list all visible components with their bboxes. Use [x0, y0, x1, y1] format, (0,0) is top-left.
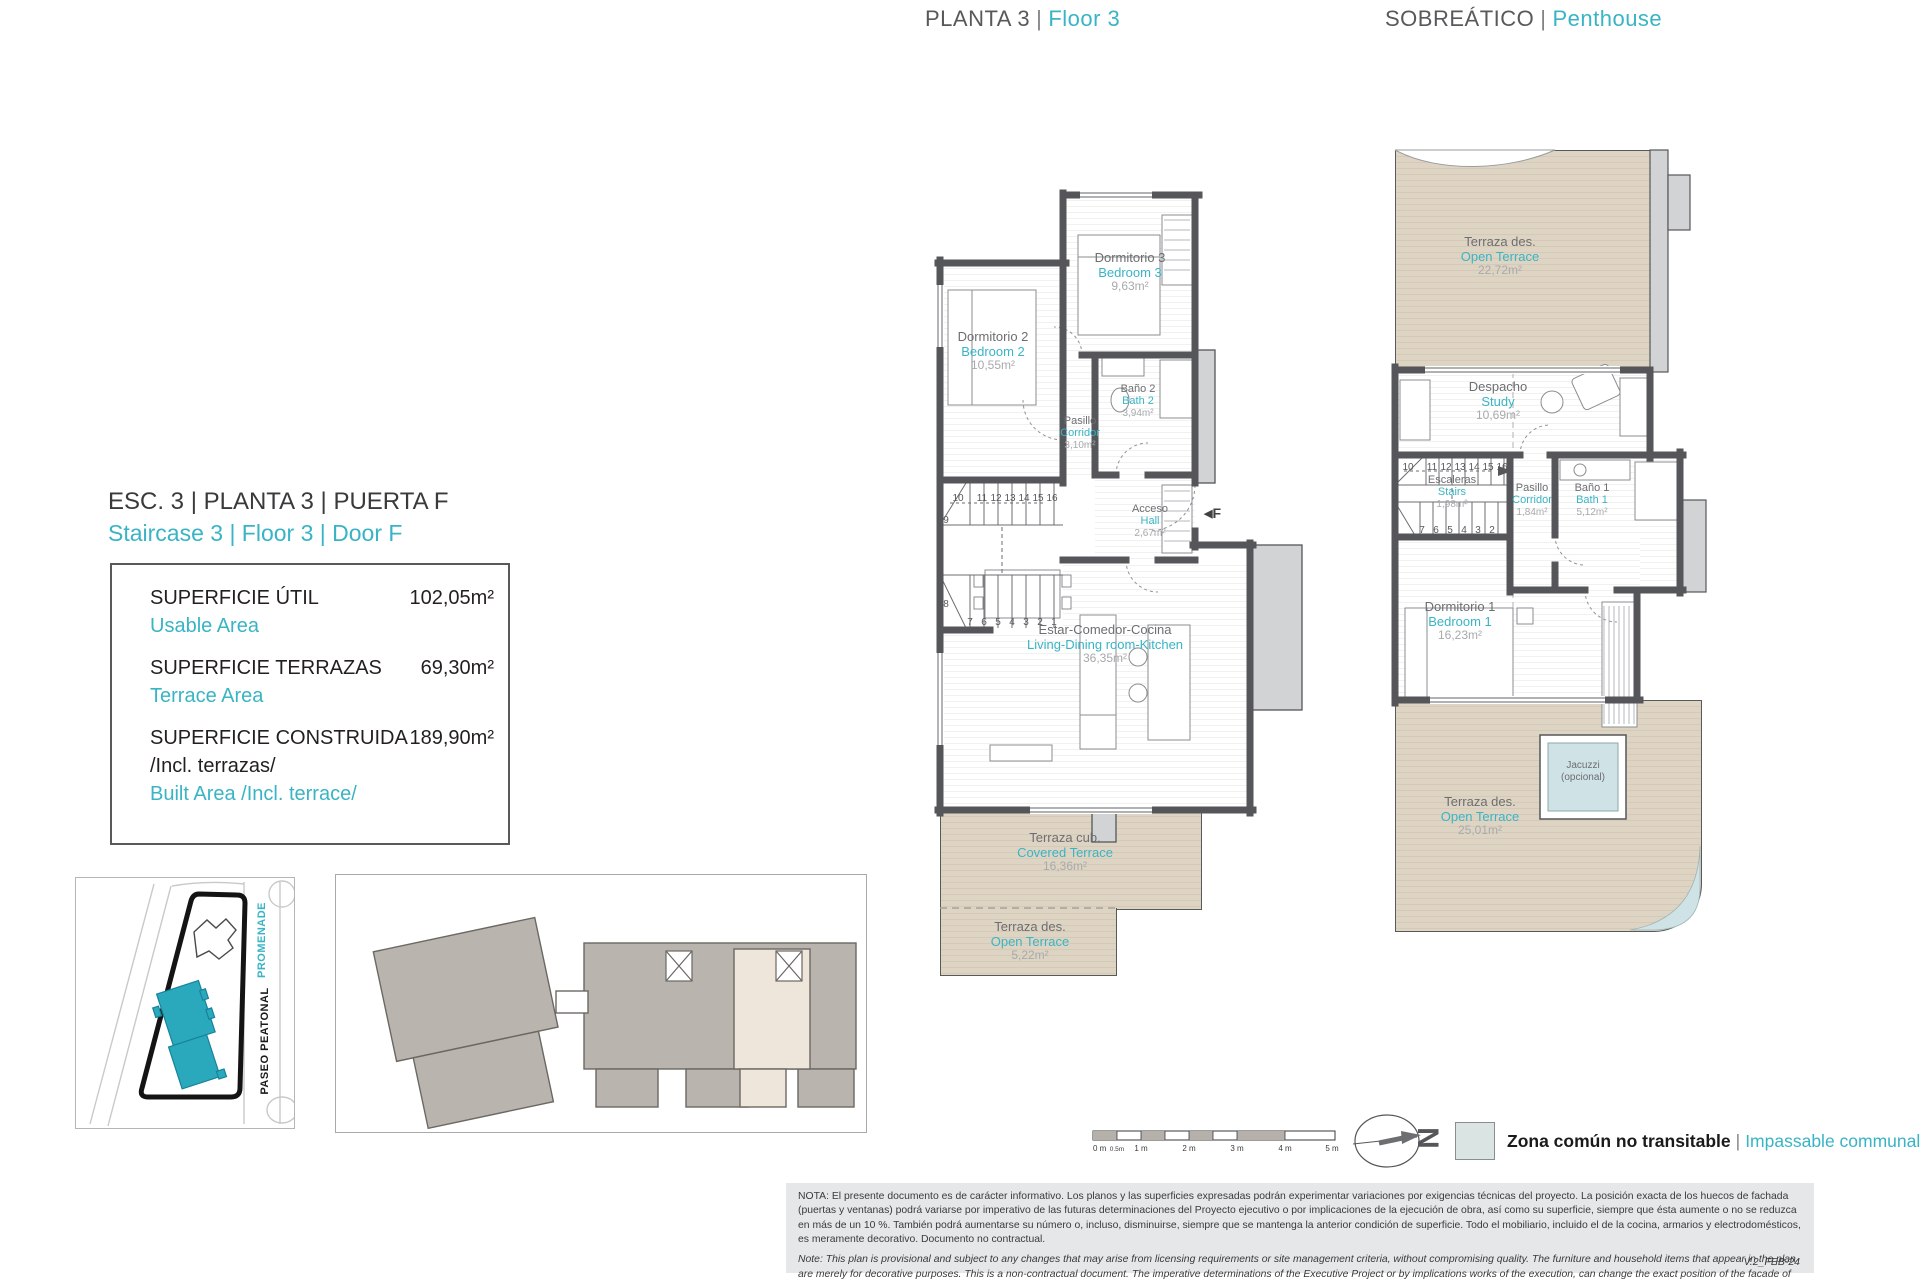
legend-label: Zona común no transitable|Impassable com… [1507, 1131, 1920, 1152]
scale-bar-drawing: 0 m 0.5m 1 m 2 m 3 m 4 m 5 m [1092, 1128, 1342, 1156]
svg-text:8: 8 [943, 599, 949, 610]
terrace-area-en: Terrace Area [150, 685, 263, 708]
built-area-en: Built Area /Incl. terrace/ [150, 783, 357, 806]
disclaimer-english: Note: This plan is provisional and subje… [798, 1253, 1802, 1280]
svg-text:3 m: 3 m [1230, 1144, 1244, 1153]
svg-text:15: 15 [1032, 493, 1044, 504]
usable-area-label: SUPERFICIE ÚTIL [150, 587, 319, 610]
svg-text:16: 16 [1046, 493, 1058, 504]
plan3-floorplan: 10 11 12 13 14 15 16 9 8 7 6 5 4 3 2 1 [930, 185, 1310, 980]
svg-text:15: 15 [1482, 462, 1494, 473]
svg-text:12: 12 [990, 493, 1002, 504]
penthouse-header-en: Penthouse [1552, 6, 1662, 31]
plan3-header-es: PLANTA 3 [925, 6, 1030, 31]
svg-text:13: 13 [1454, 462, 1466, 473]
room-label: Dormitorio 1 Bedroom 1 16,23m² [1425, 600, 1496, 643]
svg-text:12: 12 [1440, 462, 1452, 473]
version-tag: V.2_FEB-24 [1744, 1256, 1800, 1268]
unit-subtitle: Staircase 3 | Floor 3 | Door F [108, 520, 402, 547]
disclaimer-spanish: NOTA: El presente documento es de caráct… [798, 1190, 1802, 1247]
svg-text:1 m: 1 m [1134, 1144, 1148, 1153]
svg-text:11: 11 [1427, 462, 1438, 473]
svg-text:N: N [1411, 1127, 1444, 1149]
built-area-label: SUPERFICIE CONSTRUIDA [150, 727, 408, 750]
room-label: Pasillo Corridor 1,84m² [1512, 482, 1552, 518]
floorplan-sheet: PLANTA 3|Floor 3 SOBREÁTICO|Penthouse ES… [0, 0, 1920, 1280]
disclaimer-panel: NOTA: El presente documento es de caráct… [786, 1183, 1814, 1273]
room-label: Dormitorio 3 Bedroom 3 9,63m² [1095, 251, 1166, 294]
svg-text:10: 10 [1402, 462, 1414, 473]
svg-text:4: 4 [1009, 617, 1015, 628]
svg-text:14: 14 [1018, 493, 1030, 504]
room-label: Acceso Hall 2,67m² [1132, 503, 1168, 539]
room-label: Terraza des. Open Terrace 5,22m² [991, 920, 1070, 963]
terrace-area-label: SUPERFICIE TERRAZAS [150, 657, 382, 680]
penthouse-header-es: SOBREÁTICO [1385, 6, 1534, 31]
plan3-furniture [948, 215, 1192, 761]
room-label: Escaleras Stairs 1,98m² [1428, 474, 1476, 510]
svg-text:13: 13 [1004, 493, 1016, 504]
room-label: Pasillo Corridor 3,10m² [1060, 415, 1100, 451]
svg-text:9: 9 [943, 515, 949, 526]
svg-text:11: 11 [977, 493, 988, 504]
scale-labels: 0 m 0.5m 1 m 2 m 3 m 4 m 5 m [1093, 1144, 1339, 1153]
penthouse-floorplan: 10 11 12 13 14 15 16 9 8 7 6 5 4 3 2 [1380, 140, 1790, 940]
room-label: Terraza des. Open Terrace 22,72m² [1461, 235, 1540, 278]
penthouse-communal-corner [1630, 846, 1700, 930]
room-label: Baño 2 Bath 2 3,94m² [1121, 383, 1156, 419]
key-plan-thumbnail [335, 874, 867, 1133]
room-label: Despacho Study 10,69m² [1469, 380, 1528, 423]
svg-text:0.5m: 0.5m [1110, 1146, 1124, 1153]
built-area-value: 189,90m² [410, 727, 495, 750]
svg-text:14: 14 [1468, 462, 1480, 473]
plan3-header: PLANTA 3|Floor 3 [925, 6, 1120, 32]
usable-area-en: Usable Area [150, 615, 259, 638]
svg-text:16: 16 [1496, 462, 1508, 473]
svg-text:4 m: 4 m [1278, 1144, 1292, 1153]
plan3-drawing: 10 11 12 13 14 15 16 9 8 7 6 5 4 3 2 1 [930, 185, 1310, 980]
svg-text:6: 6 [981, 617, 987, 628]
penthouse-roof-curve [1395, 150, 1555, 167]
svg-text:10: 10 [952, 493, 964, 504]
built-area-label2: /Incl. terrazas/ [150, 755, 276, 778]
terrace-area-value: 69,30m² [421, 657, 494, 680]
legend-swatch-communal [1455, 1122, 1495, 1160]
room-label: Terraza cub. Covered Terrace 16,36m² [1017, 831, 1113, 874]
room-label: Terraza des. Open Terrace 25,01m² [1441, 795, 1520, 838]
plan3-header-en: Floor 3 [1048, 6, 1120, 31]
svg-text:2 m: 2 m [1182, 1144, 1196, 1153]
unit-title: ESC. 3 | PLANTA 3 | PUERTA F [108, 488, 449, 516]
room-label: Estar-Comedor-Cocina Living-Dining room-… [1027, 623, 1183, 666]
site-plan-thumbnail: PROMENADE PASEO PEATONAL [75, 877, 295, 1129]
room-label: Baño 1 Bath 1 5,12m² [1575, 482, 1610, 518]
key-plan-drawing [336, 875, 866, 1132]
scale-bar: 0 m 0.5m 1 m 2 m 3 m 4 m 5 m [1092, 1128, 1342, 1156]
surface-areas-box: SUPERFICIE ÚTIL 102,05m² Usable Area SUP… [110, 563, 510, 845]
svg-text:5: 5 [995, 617, 1001, 628]
jacuzzi-label: Jacuzzi (opcional) [1561, 760, 1605, 784]
penthouse-header: SOBREÁTICO|Penthouse [1385, 6, 1662, 32]
svg-text:5 m: 5 m [1325, 1144, 1339, 1153]
street-label-paseo: PASEO PEATONAL [259, 987, 271, 1094]
north-arrow-icon: N [1345, 1105, 1445, 1177]
north-arrow: N [1345, 1105, 1445, 1177]
svg-text:7: 7 [967, 617, 973, 628]
street-label-promenade: PROMENADE [256, 902, 268, 978]
door-f-marker: ◀F [1204, 505, 1221, 521]
room-label: Dormitorio 2 Bedroom 2 10,55m² [958, 330, 1029, 373]
svg-text:0 m: 0 m [1093, 1144, 1107, 1153]
usable-area-value: 102,05m² [410, 587, 495, 610]
